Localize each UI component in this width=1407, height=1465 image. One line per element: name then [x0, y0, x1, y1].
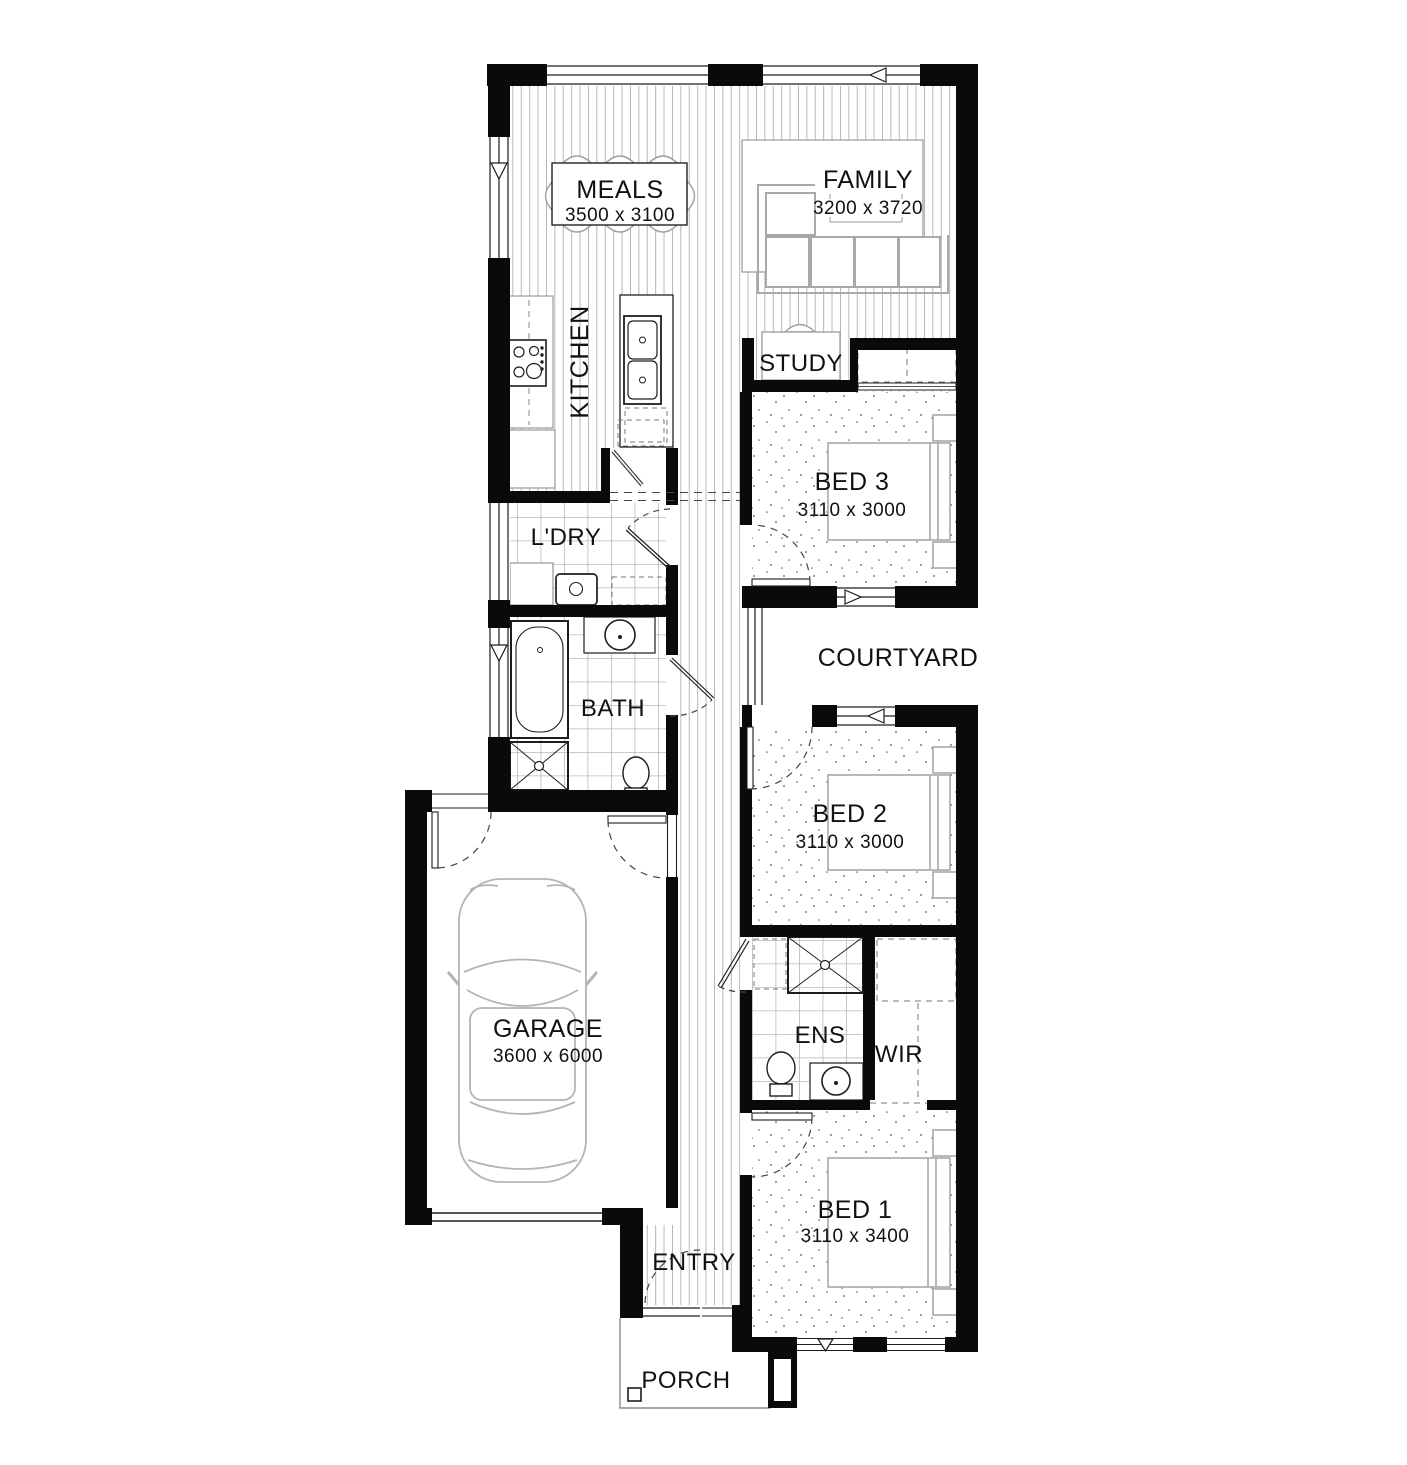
bath-label: BATH [581, 695, 645, 722]
floor-plan-canvas: MEALS 3500 x 3100 FAMILY 3200 x 3720 KIT… [0, 0, 1407, 1465]
porch-label: PORCH [641, 1367, 730, 1394]
bed1-label: BED 1 [818, 1196, 893, 1224]
ldry-label: L'DRY [531, 524, 602, 551]
study-label: STUDY [759, 350, 843, 377]
window-bath-left [488, 628, 510, 737]
bed1-dims: 3110 x 3400 [801, 1226, 910, 1247]
ens-shower [788, 937, 863, 993]
wir-label: WIR [875, 1041, 923, 1068]
kitchen-bench [506, 296, 555, 488]
meals-label: MEALS [576, 176, 663, 204]
kitchen-island [620, 295, 673, 447]
ens-vanity [810, 1063, 863, 1100]
family-label: FAMILY [823, 166, 913, 194]
bath-shower [510, 742, 568, 790]
window-meals-left [488, 137, 510, 258]
window-courtyard-side [746, 608, 764, 705]
window-bed1-bottom-right [887, 1337, 945, 1352]
cooktop [509, 340, 546, 386]
kitchen-label: KITCHEN [566, 305, 594, 418]
window-courtyard-top [837, 586, 895, 608]
bed2-dims: 3110 x 3000 [796, 832, 905, 853]
window-courtyard-bottom [837, 705, 895, 727]
garage-dims: 3600 x 6000 [493, 1046, 603, 1067]
bathtub [511, 621, 568, 738]
floor-plan-page: MEALS 3500 x 3100 FAMILY 3200 x 3720 KIT… [0, 0, 1407, 1465]
bed3-dims: 3110 x 3000 [798, 500, 907, 521]
family-dims: 3200 x 3720 [813, 198, 923, 219]
bed3-label: BED 3 [815, 468, 890, 496]
meals-dims: 3500 x 3100 [565, 205, 675, 226]
bed2-label: BED 2 [813, 800, 888, 828]
window-meals-top [547, 64, 708, 86]
garage-door [432, 1212, 602, 1222]
bath-vanity [584, 617, 655, 653]
garage-label: GARAGE [493, 1015, 603, 1043]
window-ldry-left [488, 503, 510, 600]
window-family-top [763, 64, 920, 86]
ens-label: ENS [795, 1022, 846, 1049]
porch-post [628, 1388, 641, 1401]
courtyard-label: COURTYARD [818, 644, 979, 672]
ens-toilet [767, 1052, 795, 1096]
entry-label: ENTRY [652, 1249, 735, 1276]
